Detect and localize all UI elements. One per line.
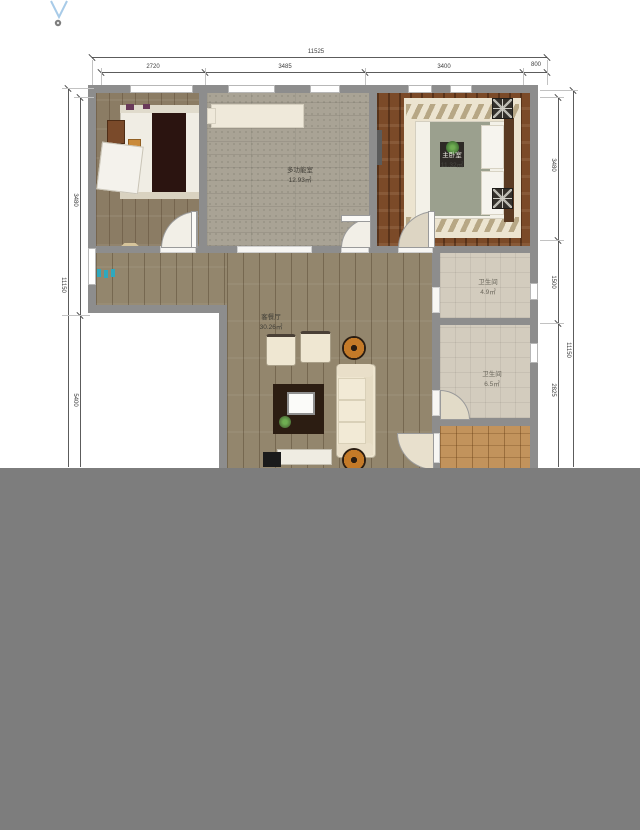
dim-line-left-outer — [68, 88, 69, 467]
bathroom1-name: 卫生间 — [478, 278, 498, 288]
door-leaf-multi — [341, 215, 371, 222]
window-multi-top-2 — [310, 85, 340, 93]
bathroom2-label: 卫生间 6.5㎡ — [482, 370, 502, 390]
entry-marker-icon — [97, 269, 101, 277]
ext-line — [540, 240, 564, 241]
tv-console — [277, 449, 332, 465]
sofa-cushion-2 — [338, 400, 366, 422]
dim-left-seg2: 5400 — [72, 393, 78, 406]
bathroom2-name: 卫生间 — [482, 370, 502, 380]
opening-multi-living — [237, 246, 312, 253]
sofa-cushion-1 — [338, 378, 366, 400]
multi-room-name: 多功能室 — [287, 166, 313, 176]
coffee-table — [287, 392, 315, 415]
wall-hall-a — [96, 246, 160, 253]
dim-top-seg1: 2720 — [146, 64, 159, 70]
dim-right-seg3: 2825 — [550, 383, 556, 396]
master-wall-unit — [377, 130, 382, 165]
ext-line — [540, 90, 578, 91]
master-room-area: 11.32㎡ — [441, 161, 463, 171]
dim-right-total: 11150 — [565, 342, 571, 358]
window-multi-top-1 — [228, 85, 275, 93]
wall-hall-b — [196, 246, 237, 253]
door-gap-bath2 — [432, 390, 440, 416]
wall-hall-d — [369, 246, 398, 253]
bedroom1-blanket — [152, 113, 186, 192]
window-right-2 — [530, 343, 538, 363]
bathroom1-area: 4.9㎡ — [478, 288, 498, 298]
dim-line-top-outer — [92, 57, 547, 58]
ext-line — [205, 68, 206, 85]
dim-line-right-inner — [558, 97, 559, 467]
hallway-floor — [96, 253, 227, 305]
ext-line — [365, 68, 366, 85]
wall-bed1-multi — [199, 93, 207, 246]
wall-hall-bottom — [88, 305, 227, 313]
master-nightstand-lamp-top-icon — [492, 98, 513, 119]
bedroom1-chair — [96, 142, 144, 195]
ext-line — [92, 60, 93, 85]
tv — [263, 452, 281, 467]
ext-line — [540, 323, 564, 324]
door-leaf-bedroom1 — [191, 211, 197, 248]
wall-bath-divider — [440, 318, 530, 325]
bedroom1-pillow-purple-2 — [143, 104, 150, 109]
dim-top-seg4: 800 — [531, 62, 541, 68]
window-master-top-2 — [450, 85, 472, 93]
dim-right-seg1: 3480 — [550, 158, 556, 171]
floor-plan-page: 多功能室 12.93㎡ 主卧室 11.32㎡ 客餐厅 30.26㎡ 卫生间 4.… — [0, 0, 640, 830]
armchair-2 — [300, 331, 331, 363]
dim-top-seg2: 3485 — [278, 64, 291, 70]
window-master-top-1 — [408, 85, 432, 93]
wall-hall-c — [312, 246, 341, 253]
dim-top-total: 11525 — [308, 49, 324, 55]
bedroom1-pillow-purple-1 — [126, 104, 134, 110]
side-table-top — [342, 336, 366, 360]
window-right-1 — [530, 283, 538, 300]
dim-line-top-inner — [101, 72, 547, 73]
sofa-cushion-3 — [338, 422, 366, 444]
living-room-name: 客餐厅 — [260, 313, 283, 323]
armchair-1 — [266, 334, 296, 366]
master-room-name: 主卧室 — [441, 151, 463, 161]
master-room-label: 主卧室 11.32㎡ — [441, 151, 463, 171]
ext-line — [547, 60, 548, 85]
dim-line-right-outer — [573, 90, 574, 467]
dim-left-total: 11150 — [60, 277, 66, 293]
multi-room-cabinet-notch — [207, 108, 216, 124]
window-bed1-top — [130, 85, 193, 93]
kitchen-floor — [440, 426, 530, 470]
living-room-label: 客餐厅 30.26㎡ — [260, 313, 283, 333]
dim-right-seg2: 1500 — [550, 275, 556, 288]
ext-line — [523, 68, 524, 85]
bedroom1-nightstand — [107, 120, 125, 144]
bathroom1-label: 卫生间 4.9㎡ — [478, 278, 498, 298]
ext-line — [101, 68, 102, 85]
door-leaf-master — [428, 211, 435, 248]
north-arrow-icon — [46, 0, 76, 30]
living-room-area: 30.26㎡ — [260, 323, 283, 333]
wall-hall-e — [433, 246, 530, 253]
ext-line — [540, 97, 564, 98]
window-left-hall — [88, 248, 96, 285]
door-gap-bath1 — [432, 287, 440, 313]
multi-room-area: 12.93㎡ — [287, 176, 313, 186]
master-bed-pillow-1 — [481, 125, 504, 169]
wall-right — [530, 85, 538, 470]
multi-room-cabinet — [211, 104, 304, 128]
ext-line — [74, 97, 94, 98]
dim-left-seg1: 3480 — [72, 193, 78, 206]
sofa-armrest-top — [337, 364, 373, 377]
wall-living-left — [219, 313, 227, 470]
multi-room-label: 多功能室 12.93㎡ — [287, 166, 313, 186]
ext-line — [62, 315, 90, 316]
bathroom2-area: 6.5㎡ — [482, 380, 502, 390]
gray-overlay — [0, 468, 640, 830]
living-plant-icon — [279, 416, 291, 428]
ext-line — [62, 88, 94, 89]
dim-top-seg3: 3400 — [437, 64, 450, 70]
master-nightstand-lamp-bottom-icon — [492, 188, 513, 209]
dim-line-left-inner — [80, 97, 81, 467]
